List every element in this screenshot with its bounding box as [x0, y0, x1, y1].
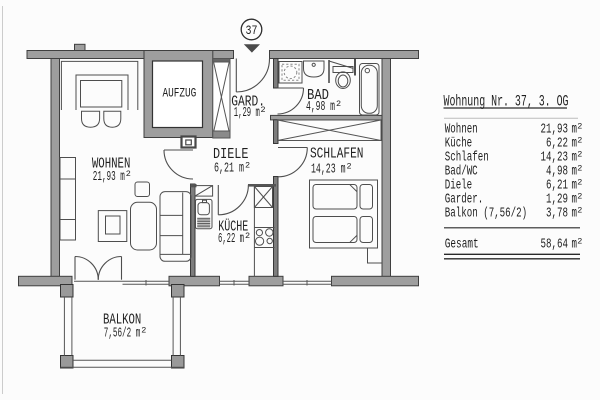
svg-text:1,29: 1,29 [546, 192, 568, 207]
svg-text:Bad/WC: Bad/WC [445, 164, 478, 179]
svg-text:6,22: 6,22 [546, 136, 568, 151]
svg-text:6,21 m: 6,21 m [214, 162, 244, 177]
svg-text:2: 2 [577, 121, 582, 131]
svg-text:2: 2 [577, 191, 582, 201]
svg-text:21,93: 21,93 [541, 122, 569, 137]
svg-text:Gesamt: Gesamt [445, 237, 479, 252]
svg-text:AUFZUG: AUFZUG [163, 85, 197, 100]
svg-text:m: m [572, 164, 578, 179]
svg-text:m: m [572, 237, 578, 252]
svg-text:2: 2 [577, 163, 582, 173]
svg-text:2: 2 [336, 99, 341, 109]
svg-text:Garder.: Garder. [445, 192, 484, 207]
svg-text:4,98: 4,98 [546, 164, 568, 179]
svg-text:7,56/2 m: 7,56/2 m [104, 326, 141, 341]
svg-text:58,64: 58,64 [541, 237, 569, 252]
svg-text:2: 2 [261, 105, 266, 115]
svg-text:6,22 m: 6,22 m [218, 232, 244, 247]
svg-text:4,98 m: 4,98 m [306, 100, 335, 115]
svg-text:2: 2 [245, 231, 250, 241]
svg-text:Küche: Küche [445, 136, 473, 151]
svg-text:2: 2 [577, 177, 582, 187]
svg-text:Balkon (7,56/2): Balkon (7,56/2) [445, 206, 528, 221]
svg-text:37: 37 [246, 23, 258, 38]
svg-text:m: m [572, 136, 578, 151]
svg-text:6,21: 6,21 [546, 178, 568, 193]
svg-text:m: m [572, 150, 578, 165]
svg-text:Schlafen: Schlafen [445, 150, 489, 165]
svg-text:2: 2 [577, 205, 582, 215]
svg-text:1,29 m: 1,29 m [234, 106, 260, 121]
svg-text:21,93 m: 21,93 m [93, 170, 125, 185]
svg-text:m: m [572, 122, 578, 137]
svg-text:DIELE: DIELE [213, 147, 249, 163]
svg-text:2: 2 [141, 325, 146, 335]
svg-text:Wohnen: Wohnen [445, 122, 478, 137]
svg-text:2: 2 [347, 162, 352, 172]
svg-text:2: 2 [577, 135, 582, 145]
svg-text:14,23: 14,23 [541, 150, 569, 165]
svg-text:SCHLAFEN: SCHLAFEN [310, 147, 364, 163]
svg-text:m: m [572, 192, 578, 207]
svg-text:14,23 m: 14,23 m [311, 163, 346, 178]
svg-text:2: 2 [577, 149, 582, 159]
svg-text:2: 2 [126, 169, 131, 179]
svg-text:2: 2 [245, 161, 250, 171]
svg-text:m: m [572, 206, 578, 221]
svg-text:2: 2 [577, 236, 582, 246]
svg-text:3,78: 3,78 [546, 206, 568, 221]
svg-text:m: m [572, 178, 578, 193]
svg-text:Diele: Diele [445, 178, 473, 193]
